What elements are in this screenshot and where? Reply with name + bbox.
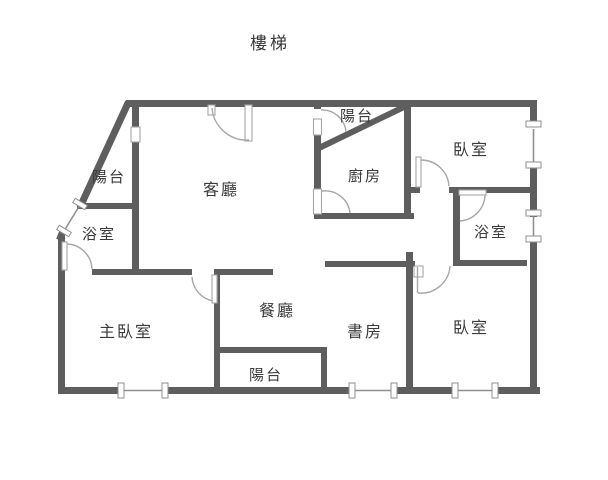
- wall-balcony-bottom-top: [219, 347, 327, 353]
- wall-study-right: [406, 252, 413, 390]
- wall-bottom-3: [395, 387, 455, 394]
- bedroom-tr-door-leaf: [416, 157, 421, 187]
- window-bottom-2-tick-2: [391, 383, 397, 398]
- room-labels: 樓梯 陽台 浴室 客廳 陽台 廚房 臥室 浴室 主臥室 餐廳 陽台 書房 臥室: [82, 34, 508, 384]
- room-label-bathroom-right: 浴室: [474, 224, 508, 241]
- entrance-door-leaf: [245, 105, 252, 141]
- window-right-2-tick-2: [526, 236, 541, 242]
- room-label-living-room: 客廳: [203, 180, 239, 199]
- bathroom-left-door-leaf: [62, 242, 67, 270]
- bedroom-tr-door-arc: [421, 160, 449, 186]
- stairs-label: 樓梯: [250, 34, 290, 53]
- entrance-door-arc: [212, 108, 249, 140]
- wall-bottom-1: [58, 387, 121, 394]
- wall-balcony-bottom-right: [321, 347, 327, 393]
- wall-right-lower: [530, 239, 537, 393]
- bathroom-right-door-leaf: [459, 190, 486, 195]
- wall-bathroom-right-left: [453, 190, 460, 266]
- wall-kitchen-right: [404, 100, 411, 213]
- room-label-study: 書房: [347, 323, 383, 341]
- wall-kitchen-left-2: [314, 134, 321, 190]
- room-label-dining-room: 餐廳: [259, 301, 295, 320]
- room-label-kitchen: 廚房: [348, 167, 382, 185]
- room-label-bathroom-left: 浴室: [82, 226, 116, 243]
- wall-balcony-left-upper: [132, 100, 139, 127]
- window-bottom-3-tick-2: [492, 383, 498, 398]
- wall-master-top-1: [92, 269, 192, 275]
- balcony-left-opening: [131, 127, 140, 142]
- window-right-1-tick-2: [526, 162, 541, 168]
- wall-bedroom-tr-bottom-1: [404, 187, 420, 193]
- window-right-1-tick-1: [526, 121, 541, 127]
- floor-plan-canvas: 樓梯 陽台 浴室 客廳 陽台 廚房 臥室 浴室 主臥室 餐廳 陽台 書房 臥室: [0, 0, 608, 480]
- windows: [57, 121, 541, 398]
- window-bottom-2-tick-1: [349, 383, 355, 398]
- room-label-balcony-top-left: 陽台: [92, 169, 126, 186]
- wall-kitchen-bottom: [314, 213, 414, 219]
- window-bottom-1-tick-1: [118, 383, 124, 398]
- wall-top: [126, 100, 533, 107]
- bedroom-br-door-jamb: [414, 266, 423, 277]
- bathroom-left-door-arc: [67, 244, 92, 269]
- room-label-bedroom-top-right: 臥室: [453, 141, 489, 159]
- master-bedroom-door-arc: [192, 277, 213, 301]
- entrance-door-jamb: [208, 105, 215, 115]
- kitchen-balcony-door-leaf: [314, 119, 322, 135]
- room-label-bedroom-bottom-right: 臥室: [453, 319, 489, 337]
- kitchen-door-leaf: [314, 189, 322, 214]
- bathroom-right-door-arc: [460, 195, 485, 221]
- wall-kitchen-left-1: [314, 100, 321, 109]
- wall-master-top-2: [214, 269, 273, 275]
- wall-study-top: [325, 261, 415, 267]
- kitchen-door-arc: [322, 191, 350, 213]
- master-bedroom-door-leaf: [212, 275, 217, 303]
- wall-bottom-4: [496, 387, 540, 394]
- window-right-2-tick-1: [526, 210, 541, 216]
- room-label-balcony-bottom: 陽台: [249, 367, 283, 384]
- floor-plan-drawing: 樓梯 陽台 浴室 客廳 陽台 廚房 臥室 浴室 主臥室 餐廳 陽台 書房 臥室: [0, 0, 608, 480]
- window-bottom-3-tick-1: [452, 383, 458, 398]
- room-label-master-bedroom: 主臥室: [99, 323, 153, 341]
- wall-bathroom-right-bottom: [453, 260, 527, 266]
- wall-diagonal-left: [81, 102, 129, 205]
- window-diagonal: [64, 205, 80, 231]
- window-bottom-1-tick-2: [162, 383, 168, 398]
- room-label-balcony-kitchen: 陽台: [340, 108, 374, 125]
